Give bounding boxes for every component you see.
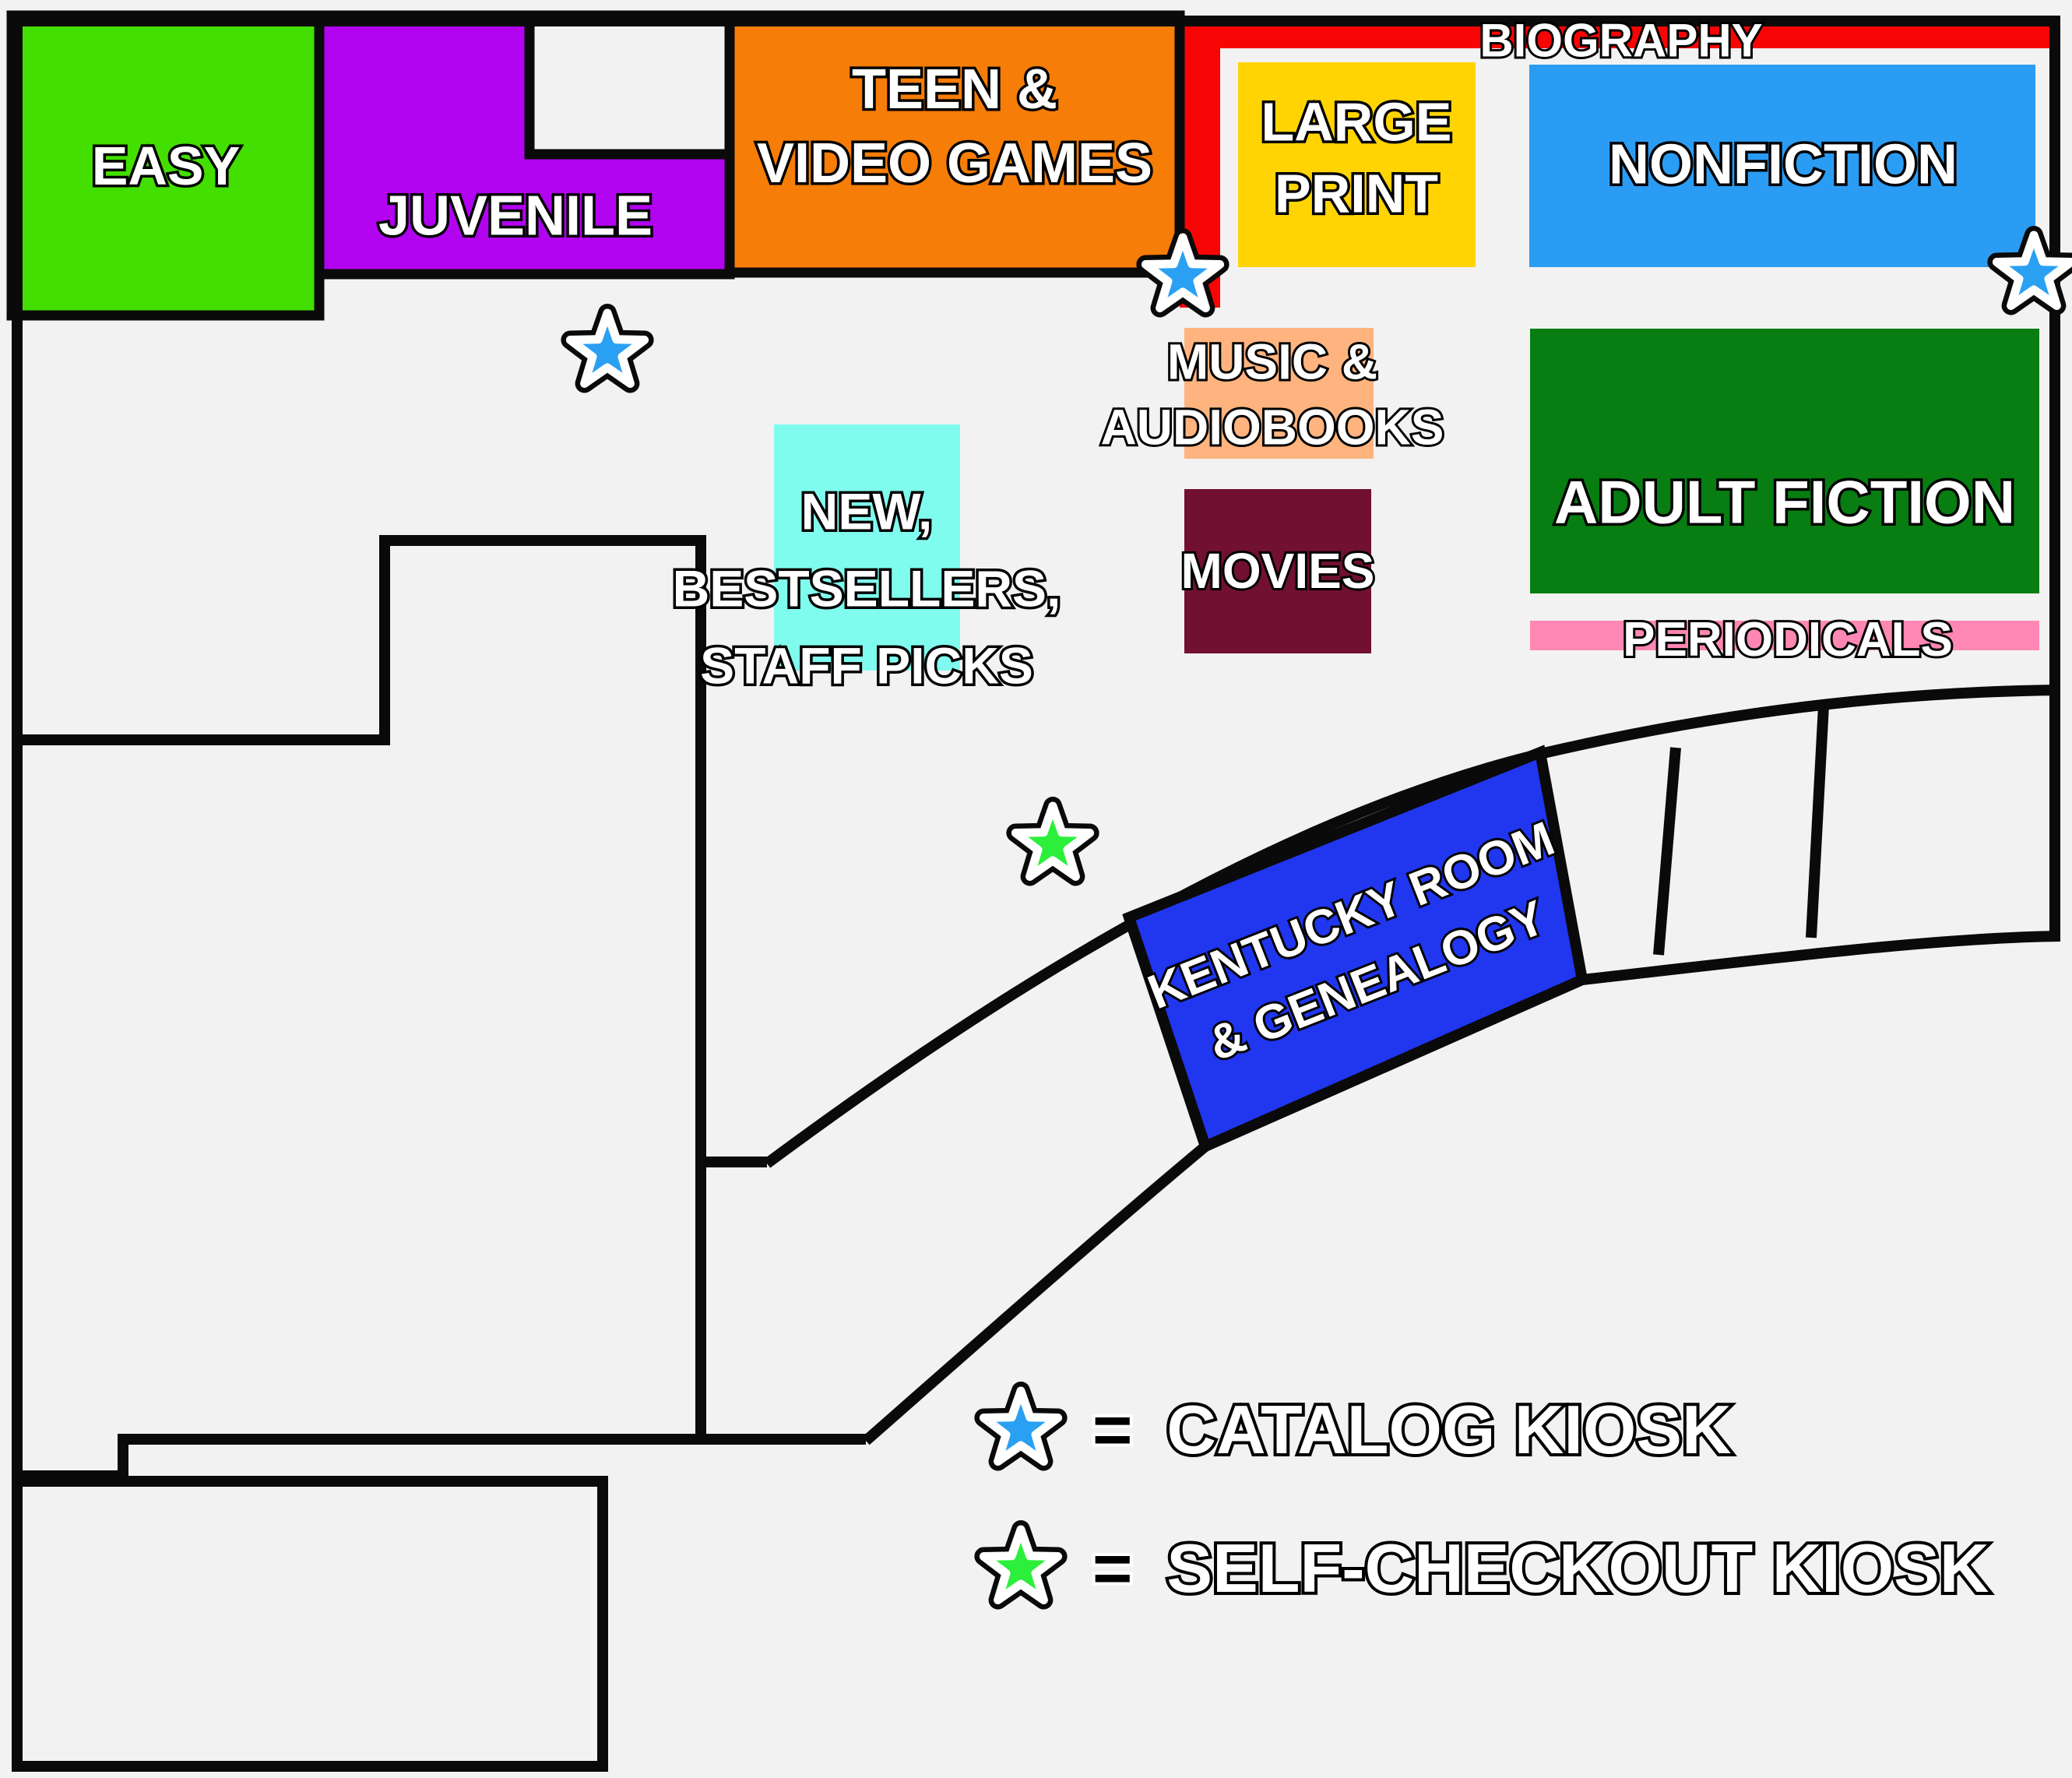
legend-item-self-checkout-kiosk: = SELF-CHECKOUT KIOSK (969, 1517, 1989, 1620)
juvenile-label: JUVENILE (378, 179, 653, 253)
periodicals-label: PERIODICALS (1623, 608, 1953, 672)
new-bestsellers-label-line1: NEW, (673, 474, 1061, 551)
kiosk-star-icon (570, 313, 644, 384)
nonfiction-label: NONFICTION (1609, 128, 1958, 202)
large-print-label: LARGE PRINT (1261, 86, 1452, 231)
library-floor-plan: { "map": { "background_color": "#f2f2f2"… (0, 0, 2072, 1778)
new-bestsellers-label-line2: BESTSELLERS, (673, 551, 1061, 628)
adult-fiction-area (1530, 329, 2039, 593)
catalog-kiosk-star-icon (969, 1378, 1072, 1481)
music-label-line1: MUSIC & (1101, 329, 1444, 395)
music-label-line2: AUDIOBOOKS (1101, 395, 1444, 460)
legend-equals-sign: = (1092, 1390, 1132, 1470)
biography-label: BIOGRAPHY (1479, 9, 1762, 71)
legend-equals-sign: = (1092, 1529, 1132, 1608)
juvenile-notch-room (529, 16, 730, 154)
kiosk-star-icon (983, 1391, 1057, 1462)
teen-label-line2: VIDEO GAMES (757, 127, 1152, 201)
self-checkout-kiosk-star-icon (969, 1517, 1072, 1620)
kiosk-star-icon (1015, 806, 1089, 877)
corridor-divider-2 (1811, 706, 1824, 938)
wall-interior-step-lower (12, 1439, 866, 1476)
legend-self-checkout-kiosk-label: SELF-CHECKOUT KIOSK (1166, 1529, 1989, 1608)
music-audiobooks-label: MUSIC & AUDIOBOOKS (1101, 329, 1444, 461)
new-bestsellers-label: NEW, BESTSELLERS, STAFF PICKS (673, 474, 1061, 705)
corridor-divider-1 (1659, 748, 1676, 955)
wall-interior-step-upper (12, 540, 706, 740)
large-print-label-line2: PRINT (1261, 158, 1452, 230)
floor-plan-canvas (0, 0, 2072, 1778)
lower-left-room (17, 1481, 603, 1766)
teen-label-line1: TEEN & (757, 53, 1152, 127)
legend-item-catalog-kiosk: = CATALOG KIOSK (969, 1378, 1732, 1481)
legend-catalog-kiosk-label: CATALOG KIOSK (1166, 1390, 1731, 1470)
easy-label: EASY (92, 130, 241, 202)
large-print-label-line1: LARGE (1261, 86, 1452, 158)
kiosk-star-icon (983, 1530, 1057, 1600)
movies-label: MOVIES (1181, 538, 1375, 604)
new-bestsellers-label-line3: STAFF PICKS (673, 628, 1061, 705)
adult-fiction-label: ADULT FICTION (1554, 463, 2015, 543)
teen-video-games-label: TEEN & VIDEO GAMES (757, 53, 1152, 201)
